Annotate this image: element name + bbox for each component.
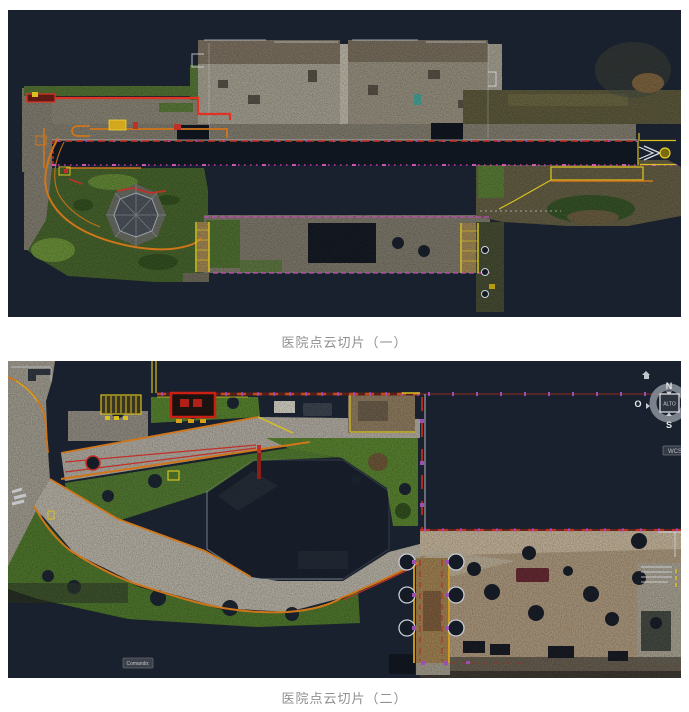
command-line[interactable]: Comando: — [123, 658, 153, 668]
figure-2-image: ALTO N S O WCS Comando: — [8, 361, 681, 678]
figure-2-caption: 医院点云切片（二） — [0, 688, 689, 707]
viewcube-top-face-label[interactable]: ALTO — [663, 402, 676, 408]
pointcloud-canvas-1 — [8, 10, 681, 317]
figure-1-caption: 医院点云切片（一） — [0, 332, 689, 351]
command-prompt-label[interactable]: Comando: — [126, 661, 149, 667]
wcs-dropdown-label[interactable]: WCS — [668, 449, 681, 455]
figure-1-image — [8, 10, 681, 317]
pointcloud-canvas-2[interactable]: ALTO N S O WCS Comando: — [8, 361, 681, 678]
compass-south-label[interactable]: S — [666, 420, 672, 430]
compass-north-label[interactable]: N — [666, 381, 673, 391]
home-icon-body[interactable] — [644, 375, 649, 379]
compass-west-label[interactable]: O — [634, 399, 641, 409]
